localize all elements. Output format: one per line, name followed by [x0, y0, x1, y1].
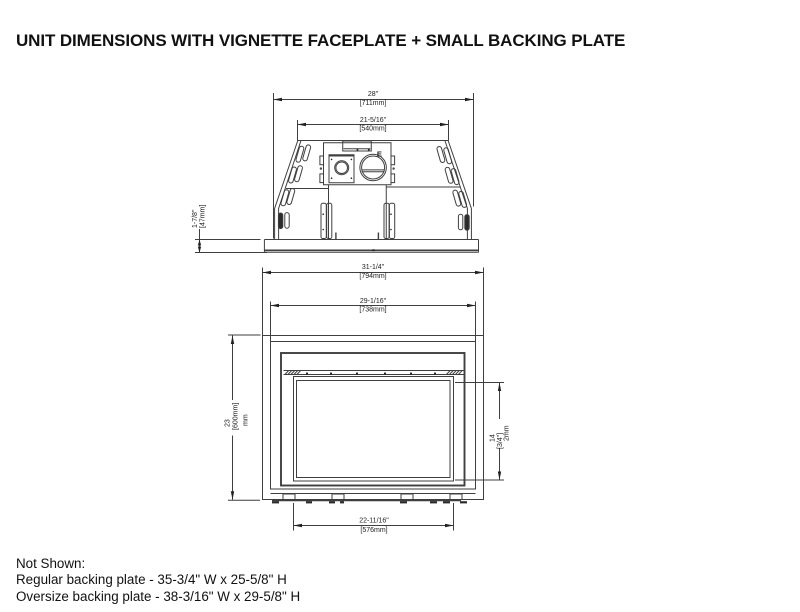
svg-text:[600mm]: [600mm]	[233, 403, 240, 430]
svg-text:[576mm]: [576mm]	[360, 527, 387, 534]
svg-text:23: 23	[225, 419, 232, 427]
svg-text:[711mm]: [711mm]	[360, 100, 387, 107]
svg-text:mm: mm	[243, 414, 250, 426]
svg-text:2mm: 2mm	[504, 425, 511, 441]
svg-text:[47mm]: [47mm]	[200, 205, 207, 228]
svg-text:[738mm]: [738mm]	[359, 306, 386, 313]
svg-text:22-11/16": 22-11/16"	[359, 517, 389, 524]
svg-text:21-5/16": 21-5/16"	[360, 117, 387, 124]
svg-text:[540mm]: [540mm]	[359, 126, 386, 133]
svg-text:31-1/4": 31-1/4"	[362, 264, 385, 271]
svg-text:E: E	[377, 149, 382, 158]
svg-text:29-1/16": 29-1/16"	[360, 298, 387, 305]
svg-text:14: 14	[490, 434, 497, 442]
svg-text:1-7/8": 1-7/8"	[192, 209, 199, 228]
svg-text:[794mm]: [794mm]	[359, 273, 386, 280]
svg-text:28": 28"	[368, 91, 379, 98]
